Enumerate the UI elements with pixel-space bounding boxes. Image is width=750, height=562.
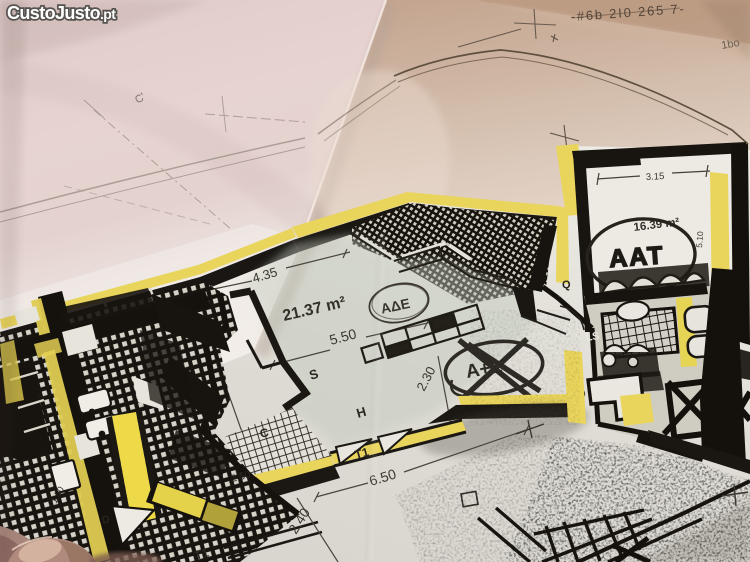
svg-text:Q: Q <box>562 279 571 291</box>
svg-text:5.10: 5.10 <box>694 231 705 248</box>
svg-text:3.15: 3.15 <box>646 171 665 183</box>
svg-text:LS: LS <box>585 330 601 344</box>
svg-text:CustoJusto.pt: CustoJusto.pt <box>7 3 116 23</box>
